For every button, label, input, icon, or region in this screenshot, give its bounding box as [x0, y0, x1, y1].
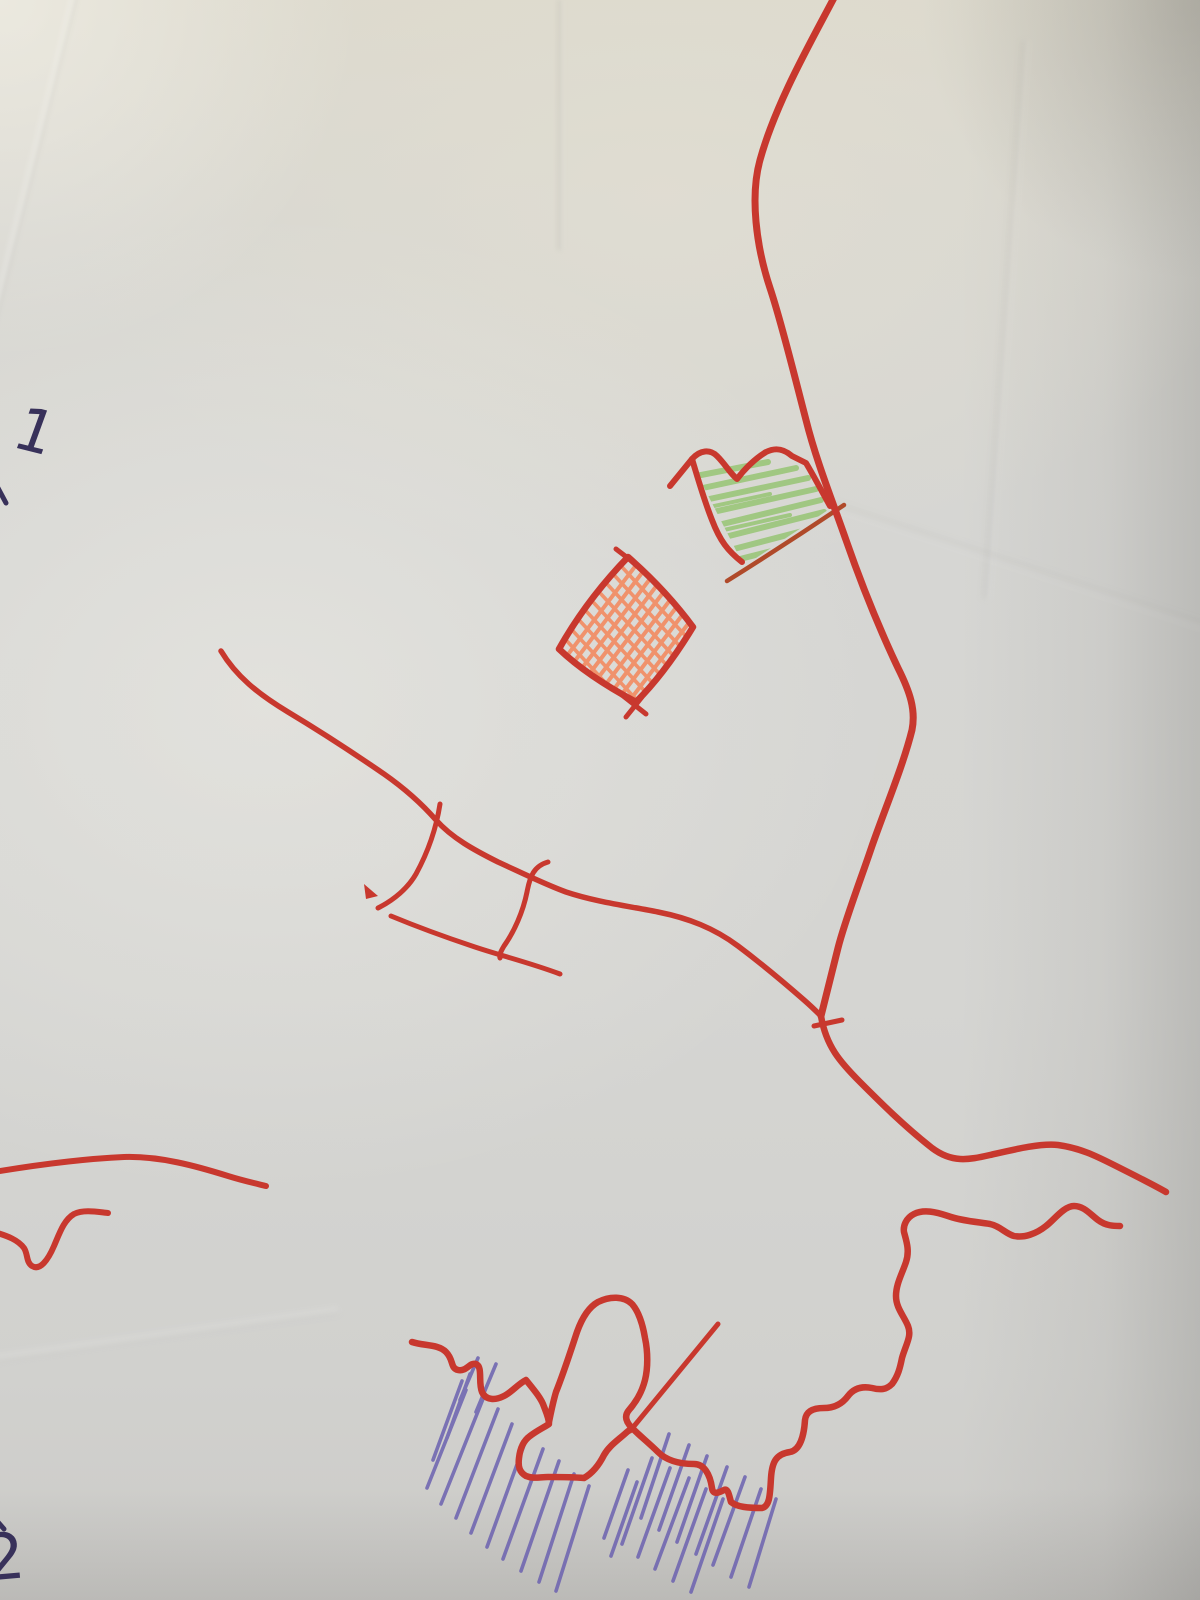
- left-road: [0, 1157, 266, 1186]
- water-hatching-right: [604, 1434, 776, 1592]
- hand-drawn-map: [0, 0, 1200, 1600]
- coast-road: [821, 1016, 1166, 1192]
- green-field-hatching: [696, 462, 824, 560]
- left-shore-zigzag: [0, 1211, 108, 1267]
- small-arrow-mark: [364, 884, 378, 899]
- edge-ink-marks: [0, 488, 6, 1529]
- west-road: [221, 651, 821, 1016]
- paper-sheet: 1 2: [0, 0, 1200, 1600]
- boot-peninsula: [549, 1298, 647, 1428]
- bridge-crossing: [364, 804, 560, 974]
- junction-tick: [814, 1020, 842, 1026]
- coastline: [412, 1206, 1120, 1508]
